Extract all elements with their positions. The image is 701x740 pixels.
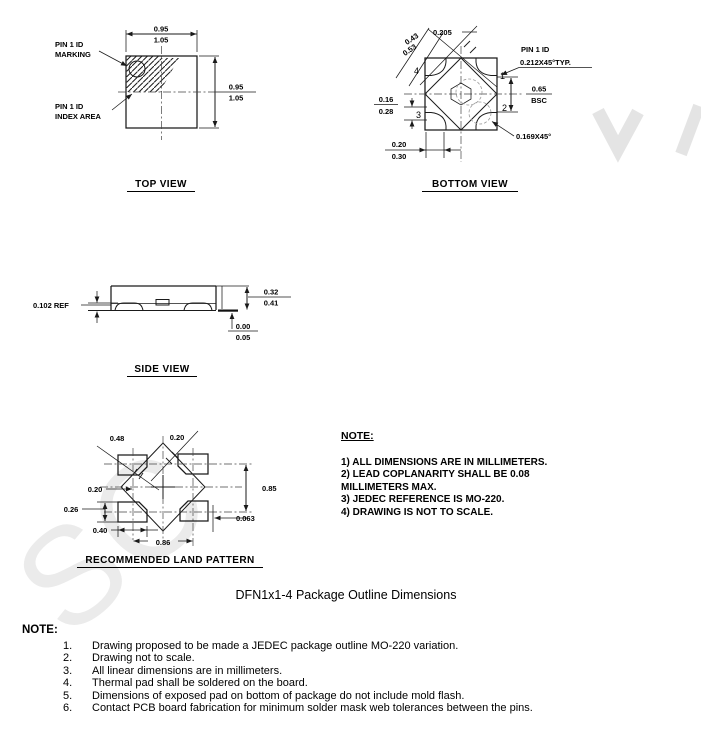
drawing-note-heading: NOTE: — [341, 430, 583, 442]
label-pin1-marking-line1: PIN 1 ID — [55, 40, 84, 49]
dim-height-num: 0.32 — [264, 288, 279, 297]
dim-top-height-num: 0.95 — [229, 83, 244, 92]
label-pin1-marking-line2: MARKING — [55, 50, 91, 59]
land-pattern-title: RECOMMENDED LAND PATTERN — [77, 555, 263, 568]
footer-note-number: 5. — [63, 690, 92, 702]
side-pads — [115, 300, 212, 311]
pad-height-dim-026 — [82, 502, 120, 522]
dim-diag-den: 0.53 — [401, 42, 418, 58]
dim-top-height-den: 1.05 — [229, 94, 244, 103]
pin-number-1: 1 — [500, 71, 505, 81]
dim-pad-w-num: 0.20 — [392, 140, 407, 149]
drawing-canvas: 0.95 1.05 0.95 1.05 PIN 1 ID MARKING PIN… — [0, 0, 701, 740]
dim-pin1-chamfer: 0.212X45°TYP. — [520, 58, 571, 67]
dim-085: 0.85 — [262, 484, 277, 493]
side-exposed-pad — [156, 300, 169, 306]
dim-ref: 0.102 REF — [33, 301, 69, 310]
dim-pitch-den: BSC — [531, 96, 547, 105]
pin-number-3: 3 — [416, 110, 421, 120]
footer-note-text: Drawing proposed to be made a JEDEC pack… — [92, 640, 458, 652]
footer-note-text: Contact PCB board fabrication for minimu… — [92, 702, 533, 714]
dim-standoff-den: 0.05 — [236, 333, 251, 342]
footer-note-item: 1. Drawing proposed to be made a JEDEC p… — [63, 640, 683, 652]
side-view-title: SIDE VIEW — [127, 364, 197, 377]
side-view-drawing: 0.32 0.41 0.00 0.05 0.102 REF — [33, 286, 291, 342]
pin-number-2: 2 — [502, 103, 507, 113]
dim-top-width-num: 0.95 — [154, 25, 169, 34]
top-view-drawing: 0.95 1.05 0.95 1.05 PIN 1 ID MARKING PIN… — [55, 25, 256, 141]
footer-note-heading: NOTE: — [22, 624, 58, 636]
bottom-view-title: BOTTOM VIEW — [422, 179, 518, 192]
corner-chamfer-leader — [492, 122, 514, 137]
drawing-note-item: 2) LEAD COPLANARITY SHALL BE 0.08 MILLIM… — [341, 469, 583, 494]
package-outline-drawing-page: SC 0.95 1.05 — [0, 0, 701, 740]
footer-note-item: 6. Contact PCB board fabrication for min… — [63, 702, 683, 714]
footer-note-number: 3. — [63, 665, 92, 677]
drawing-note-item: 3) JEDEC REFERENCE IS MO-220. — [341, 494, 583, 506]
footer-note-text: Dimensions of exposed pad on bottom of p… — [92, 690, 464, 702]
page-caption: DFN1x1-4 Package Outline Dimensions — [0, 588, 692, 602]
pin1-id-leader — [501, 68, 592, 76]
dim-pad-h-den: 0.28 — [379, 107, 394, 116]
footer-note-number: 1. — [63, 640, 92, 652]
drawing-note-item: 1) ALL DIMENSIONS ARE IN MILLIMETERS. — [341, 457, 583, 469]
dim-pitch-num: 0.65 — [532, 85, 547, 94]
board-reference-line — [218, 310, 238, 312]
lead-thickness-dimension — [81, 291, 118, 323]
dim-048: 0.48 — [110, 434, 125, 443]
dim-standoff-num: 0.00 — [236, 322, 251, 331]
land-pattern-drawing: 0.48 0.20 0.20 0.26 0.40 0.86 0.85 — [64, 431, 277, 548]
dim-040: 0.40 — [93, 526, 108, 535]
dim-chamfer-small: 0.205 — [433, 28, 452, 37]
footer-note-text: Thermal pad shall be soldered on the boa… — [92, 677, 308, 689]
dim-height-den: 0.41 — [264, 299, 279, 308]
label-pin1-index-line1: PIN 1 ID — [55, 102, 84, 111]
footer-note-item: 2. Drawing not to scale. — [63, 652, 683, 664]
dim-026: 0.26 — [64, 505, 79, 514]
drawing-note-block: NOTE: 1) ALL DIMENSIONS ARE IN MILLIMETE… — [341, 430, 583, 519]
dim-corner-chamfer: 0.169X45° — [516, 132, 551, 141]
footer-note-text: Drawing not to scale. — [92, 652, 195, 664]
footer-note-number: 4. — [63, 677, 92, 689]
pin-number-4: 4 — [414, 66, 419, 76]
dim-top-width-den: 1.05 — [154, 36, 169, 45]
watermark-chevron — [598, 106, 699, 154]
footer-note-text: All linear dimensions are in millimeters… — [92, 665, 282, 677]
label-pin1-id: PIN 1 ID — [521, 45, 550, 54]
dim-0063: 0.063 — [236, 514, 255, 523]
footer-note-number: 2. — [63, 652, 92, 664]
dim-pad-h-num: 0.16 — [379, 95, 394, 104]
footer-note-item: 3. All linear dimensions are in millimet… — [63, 665, 683, 677]
dim-086: 0.86 — [156, 538, 171, 547]
bottom-view-drawing: 0.43 0.53 0.205 4 1 3 2 0.65 BSC PIN 1 I… — [374, 26, 592, 162]
footer-note-number: 6. — [63, 702, 92, 714]
drawing-note-item: 4) DRAWING IS NOT TO SCALE. — [341, 507, 583, 519]
dim-pad-w-den: 0.30 — [392, 152, 407, 161]
footer-note-list: 1. Drawing proposed to be made a JEDEC p… — [63, 640, 683, 714]
footer-note-item: 5. Dimensions of exposed pad on bottom o… — [63, 690, 683, 702]
dim-020-left: 0.20 — [88, 485, 103, 494]
pad-width-dim-040 — [111, 526, 158, 537]
top-view-title: TOP VIEW — [127, 179, 195, 192]
footer-note-item: 4. Thermal pad shall be soldered on the … — [63, 677, 683, 689]
label-pin1-index-line2: INDEX AREA — [55, 112, 102, 121]
dim-020-top: 0.20 — [170, 433, 185, 442]
